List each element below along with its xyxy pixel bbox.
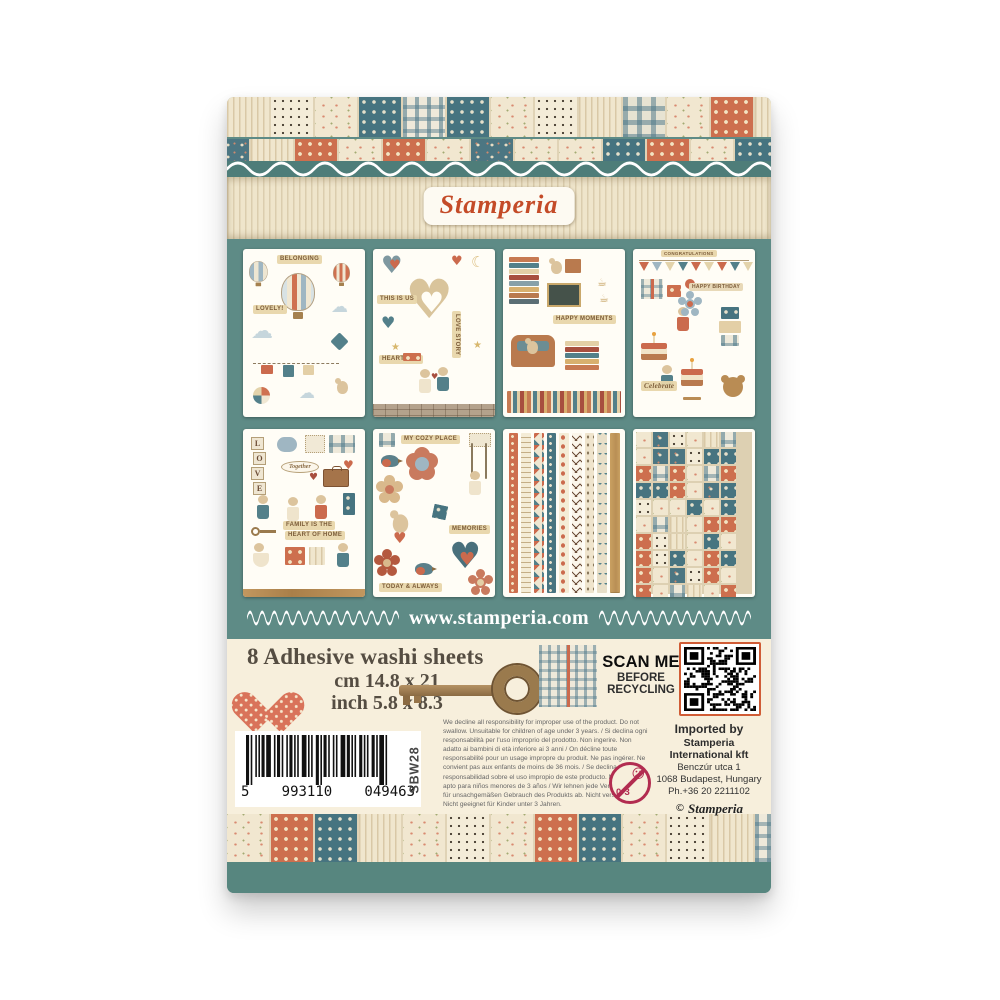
qr-code [679,642,761,716]
scan-me-line1: SCAN ME [599,653,683,672]
patch-square [721,500,736,515]
plaid-patch-icon [329,435,355,453]
copyright-icon: © [675,803,685,814]
washi-strip-icon [559,433,569,593]
sheet-preview-grid: BELONGING ☁ LOVELY! ☁ ☁ [243,249,755,597]
suitcase-icon [323,469,349,487]
product-info-panel: 8 Adhesive washi sheets cm 14.8 x 21 inc… [227,639,771,814]
barcode: 5 993110 049463 [235,731,421,807]
patch-square [636,483,651,498]
heart-icon: ♥ [431,373,438,381]
patch-square [403,97,445,137]
letter-block: E [253,482,266,495]
washi-strip-icon [534,433,544,593]
bookshelf-icon [507,391,621,413]
patch-square [667,814,709,862]
patch-square [670,568,685,583]
sheet-thumbnail-family: L O V E ♥ Together ♥ FAMILY IS [243,429,365,597]
mouse-with-flowers-icon [677,307,689,331]
washi-strip-icon [343,493,355,515]
barcode-digits: 5 993110 049463 [235,784,421,800]
bunting-icon [639,260,749,271]
stitched-heart-icon [243,675,293,721]
open-book-icon [565,259,581,273]
importer-line5: Ph.+36 20 2211102 [653,786,765,797]
heart-icon: ♥ [381,315,395,331]
patch-square [691,139,733,161]
wave-line-icon [599,610,751,626]
heart-frame-inner: ♥ [419,289,444,317]
patch-square [427,139,469,161]
patch-square [653,483,668,498]
cardboard-strip: Stamperia [227,177,771,239]
washi-strip-icon [509,433,519,593]
patchwork-grid [636,432,752,594]
patch-square [735,139,771,161]
patch-square [755,814,771,862]
sheet-label: MEMORIES [449,525,490,534]
sheet-thumbnail-belonging: BELONGING ☁ LOVELY! ☁ ☁ [243,249,365,417]
patch-square [687,585,702,597]
baby-bundle-icon [277,437,297,452]
scan-me-line2: BEFORE [599,672,683,684]
patch-square [491,97,533,137]
patch-square [704,534,719,549]
teacup-icon: ☕︎ [599,293,609,304]
sheet-preview-panel: BELONGING ☁ LOVELY! ☁ ☁ [227,239,771,639]
sheet-thumbnail-washi-borders [503,429,625,597]
sheet-label: HEART OF HOME [285,531,345,540]
stool-icon [683,397,701,400]
importer-line2: Stamperia International kft [653,737,765,761]
brand-logo-plate: Stamperia [424,187,575,225]
patch-square [315,97,357,137]
letter-block: L [251,437,264,450]
sheet-label: Celebrate [641,381,677,391]
importer-line3: Benczúr utca 1 [653,762,765,773]
clothes-icon [283,365,294,377]
key-icon [251,527,277,537]
patch-square [653,432,668,447]
birthday-cake-icon [681,369,703,386]
gift-box-icon [539,645,597,707]
patch-square [704,483,719,498]
mouse-on-swing-icon [469,471,481,495]
letter-block: O [253,452,266,465]
washi-strip-icon [521,433,531,593]
sheet-label: LOVELY! [253,305,287,314]
book-stack-icon [509,257,539,304]
patch-square [227,814,269,862]
patch-square [670,432,685,447]
patch-square [721,432,736,447]
gift-box-icon [719,321,741,333]
washi-strip-icon [597,433,607,593]
sheet-label: FAMILY IS THE [283,521,335,530]
patch-square [670,466,685,481]
patch-icon [432,504,449,521]
sheet-label: HAPPY BIRTHDAY [689,283,743,291]
moon-icon: ☾ [471,255,484,270]
patch-square [670,585,685,597]
copyright-brand: Stamperia [688,801,743,816]
cloud-icon: ☁ [331,299,348,316]
patch-square [670,500,685,515]
patch-square [636,568,651,583]
wave-line-icon [247,610,399,626]
lace-patch-icon [305,435,325,453]
sheet-label: HAPPY MOMENTS [553,315,616,324]
patch-square [383,139,425,161]
patch-square [670,483,685,498]
patch-square [447,97,489,137]
brand-logo: Stamperia [440,190,559,219]
patch-square [653,568,668,583]
flower-icon [475,577,486,588]
patch-square [251,139,293,161]
patch-square [687,432,702,447]
teddy-bear-icon [723,377,743,397]
birthday-cake-icon [641,343,667,360]
patch-square [670,534,685,549]
importer-line4: 1068 Budapest, Hungary [653,774,765,785]
sheet-label: TODAY & ALWAYS [379,583,442,592]
importer-line1: Imported by [653,722,765,736]
book-stack-icon [565,341,599,370]
product-package-back: Stamperia BELONGING ☁ LOVELY! ☁ [227,97,771,893]
patch-square [535,814,577,862]
sku-text: SBW28 [408,746,422,793]
patch-square [711,814,753,862]
patch-square [315,814,357,862]
wavy-divider-band [227,161,771,177]
sheet-thumbnail-celebrate: CONGRATULATIONS HAPPY BIRTHDAY [633,249,755,417]
patchwork-border-bottom [227,814,771,862]
patch-square [559,139,601,161]
vintage-key-icon [399,665,541,715]
patch-square [721,585,736,597]
patchwork-border-top-row2 [227,139,771,161]
scan-me-line3: RECYCLING [599,684,683,696]
mouse-mother-icon [253,543,265,567]
patch-square [579,97,621,137]
plaid-patch-icon [379,433,395,447]
gift-box-icon [721,307,739,319]
patch-square [721,568,736,583]
patch-square [339,139,381,161]
clothes-icon [303,365,314,375]
patch-square [271,97,313,137]
patch-square [687,551,702,566]
patch-square [636,517,651,532]
sheet-label: MY COZY PLACE [401,435,460,444]
patch-square [687,449,702,464]
age-warning-label: 0-3 [616,787,630,798]
patch-square [711,97,753,137]
patch-square [623,97,665,137]
patch-square [447,814,489,862]
patch-square [653,534,668,549]
patch-square [653,500,668,515]
patch-square [670,449,685,464]
sheet-thumbnail-this-is-us: ♥ ♥ ♥ ☾ ♥ ♥ THIS IS US LOVE STORY ♥ ★ ★ … [373,249,495,417]
patch-square [636,432,651,447]
heart-icon: ♥ [393,531,406,546]
patch-square [636,585,651,597]
importer-block: Imported by Stamperia International kft … [653,722,765,817]
teacup-icon: ☕︎ [597,277,607,288]
patch-square [647,139,689,161]
sheet-thumbnail-cozy-place: MY COZY PLACE ♥ MEMORIES ♥ ♥ [373,429,495,597]
hot-air-balloon-icon [333,263,350,286]
page-background: Stamperia BELONGING ☁ LOVELY! ☁ [0,0,1000,1000]
sad-face-icon: ☹ [631,766,645,782]
patch-square [721,551,736,566]
patch-square [403,814,445,862]
patchwork-ball-icon [253,387,270,404]
patchwork-border-top-row1 [227,97,771,137]
brick-wall-icon [373,404,495,417]
patch-square [227,97,269,137]
patch-square [687,568,702,583]
swing-rope-icon [485,443,487,479]
bouquet-icon [685,299,695,309]
star-icon: ★ [391,343,400,353]
patch-square [721,517,736,532]
copyright-line: ©Stamperia [653,801,765,817]
patch-square [670,551,685,566]
gift-box-icon [721,335,739,346]
patch-square [579,814,621,862]
patch-square [687,483,702,498]
patch-square [636,500,651,515]
patch-square [636,449,651,464]
mouse-icon [287,497,299,521]
washi-strip-icon [585,433,595,593]
star-icon: ★ [473,341,482,351]
patch-icon [309,547,325,565]
patch-square [704,432,719,447]
flower-icon [383,483,396,496]
patch-square [755,97,771,137]
washi-tape-icon [403,353,421,361]
patch-square [515,139,557,161]
chalkboard-icon [547,283,581,307]
patch-square [295,139,337,161]
age-warning-icon: ☹ 0-3 [609,762,651,804]
patch-square [623,814,665,862]
sheet-thumbnail-patchwork [633,429,755,597]
patch-square [653,466,668,481]
bird-icon [381,455,399,467]
mouse-icon [337,381,348,394]
website-band: www.stamperia.com [243,597,755,639]
flower-icon [413,455,431,473]
barcode-group1: 993110 [282,784,333,800]
patch-square [704,568,719,583]
patch-square [471,139,513,161]
mouse-icon [315,495,327,519]
kite-icon [330,332,348,350]
patch-square [653,517,668,532]
flower-icon [381,557,393,569]
sheet-label: CONGRATULATIONS [661,250,717,257]
heart-icon: ♥ [309,473,318,483]
patch-square [721,466,736,481]
patch-square [704,466,719,481]
washi-strip-icon [547,433,557,593]
cloud-icon: ☁ [299,385,315,401]
patch-square [653,551,668,566]
washi-strip-icon [572,433,582,593]
patch-square [636,466,651,481]
letter-block: V [251,467,264,480]
patch-square [704,551,719,566]
footer-band [227,862,771,893]
wave-line-icon [227,161,771,177]
mouse-icon [527,341,538,354]
wood-strip-icon [243,589,365,597]
patch-square [667,97,709,137]
sheet-label: LOVE STORY [452,311,461,358]
patch-square [721,534,736,549]
heart-icon: ♥ [451,255,463,268]
clothesline-icon [253,363,339,364]
patch-square [535,97,577,137]
hot-air-balloon-icon [249,261,268,286]
patch-square [704,449,719,464]
mouse-icon [437,367,449,391]
sheet-label: THIS IS US [377,295,417,304]
patch-square [687,534,702,549]
patch-square [603,139,645,161]
heart-icon: ♥ [389,259,401,272]
patch-square [687,517,702,532]
cloud-icon: ☁ [251,321,273,343]
patch-square [227,139,249,161]
patch-square [359,97,401,137]
patch-square [359,814,401,862]
sheet-label: BELONGING [277,255,322,264]
patch-square [670,517,685,532]
patch-square [687,466,702,481]
gift-box-icon [667,285,681,297]
patch-square [653,449,668,464]
patch-square [704,500,719,515]
sku-code: SBW28 [419,733,435,807]
bird-icon [415,563,433,575]
washi-strips [507,433,621,593]
sheet-thumbnail-happy-moments: ☕︎ ☕︎ HAPPY MOMENTS [503,249,625,417]
barcode-prefix: 5 [241,784,249,800]
patch-square [721,449,736,464]
gift-box-icon [641,279,663,299]
patch-square [704,585,719,597]
patch-square [721,483,736,498]
patch-square [636,534,651,549]
patch-square [687,500,702,515]
patch-square [653,585,668,597]
mouse-icon [551,261,562,274]
clothes-icon [261,365,273,374]
patchwork-heart-icon: ♥ [459,551,475,569]
patch-square [491,814,533,862]
mouse-father-icon [337,543,349,567]
website-url: www.stamperia.com [409,607,589,630]
patch-icon [285,547,305,565]
mouse-icon [257,495,269,519]
washi-strip-icon [610,433,620,593]
patch-square [271,814,313,862]
patch-square [704,517,719,532]
scan-me-block: SCAN ME BEFORE RECYCLING [599,653,683,696]
patch-square [636,551,651,566]
mouse-icon [419,369,431,393]
